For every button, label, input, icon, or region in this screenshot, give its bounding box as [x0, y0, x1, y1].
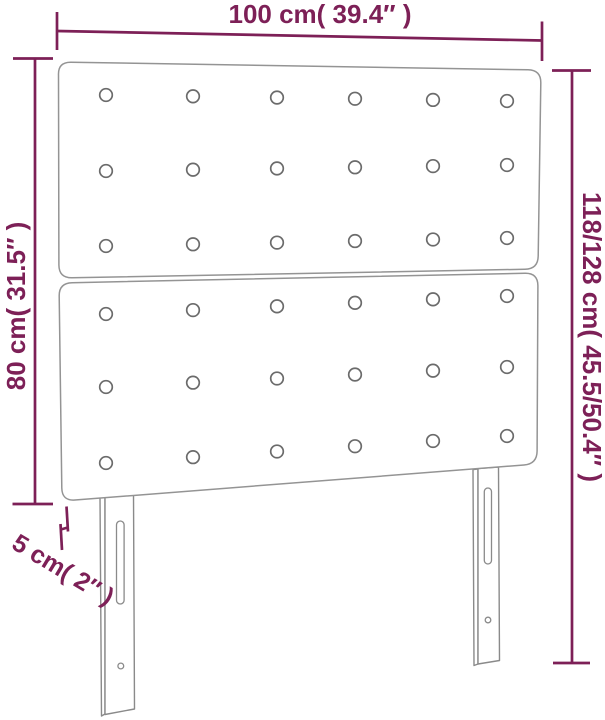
upholstery-button [100, 89, 113, 102]
upholstery-button [100, 165, 113, 178]
upholstery-button [501, 95, 514, 108]
upholstery-button [427, 364, 440, 377]
right-leg-slot [484, 488, 491, 564]
diagram-canvas: 100 cm( 39.4″ ) 80 cm( 31.5″ ) 118/128 c… [0, 0, 605, 720]
upholstery-button [271, 236, 284, 249]
upholstery-button [349, 92, 362, 105]
upholstery-button [187, 376, 200, 389]
upholstery-button [427, 94, 440, 107]
upholstery-button [100, 457, 113, 470]
thickness-dimension-connector [61, 528, 68, 530]
upholstery-button [427, 233, 440, 246]
upholstery-button [187, 163, 200, 176]
width-dimension-line [57, 31, 542, 41]
upholstery-button [427, 435, 440, 448]
upholstery-button [100, 308, 113, 321]
width-dimension: 100 cm( 39.4″ ) [57, 0, 542, 61]
right-leg-side-face [473, 469, 478, 666]
upholstery-button [501, 430, 514, 443]
upholstery-button [349, 235, 362, 248]
upholstery-button [271, 91, 284, 104]
upholstery-button [100, 240, 113, 253]
upholstery-button [501, 290, 514, 303]
right-height-dimension: 118/128 cm( 45.5/50.4″ ) [552, 71, 605, 664]
upholstery-button [271, 445, 284, 458]
upholstery-button [501, 361, 514, 374]
upholstery-button [187, 238, 200, 251]
width-dimension-label: 100 cm( 39.4″ ) [228, 0, 411, 29]
upholstery-button [427, 160, 440, 173]
upholstery-button [501, 159, 514, 172]
upholstery-button [271, 300, 284, 313]
upholstery-button [349, 297, 362, 310]
headboard-right-leg [473, 467, 500, 666]
upholstery-button [271, 372, 284, 385]
upholstery-button [271, 162, 284, 175]
upholstery-button [349, 161, 362, 174]
upholstery-button [100, 381, 113, 394]
right-height-dimension-label: 118/128 cm( 45.5/50.4″ ) [577, 192, 605, 482]
upholstery-button [187, 90, 200, 103]
left-height-dimension: 80 cm( 31.5″ ) [1, 59, 53, 505]
left-height-dimension-label: 80 cm( 31.5″ ) [1, 222, 31, 391]
upholstery-button [187, 304, 200, 317]
upholstery-button [349, 440, 362, 453]
upholstery-button [349, 368, 362, 381]
left-leg-screw-hole [118, 663, 124, 669]
right-leg-screw-hole [485, 617, 491, 623]
upholstery-button [501, 232, 514, 245]
headboard-upper-panel [58, 62, 540, 278]
headboard-lower-panel [59, 273, 538, 500]
upholstery-button [427, 293, 440, 306]
headboard-dimension-diagram: 100 cm( 39.4″ ) 80 cm( 31.5″ ) 118/128 c… [0, 0, 605, 720]
left-leg-slot [117, 521, 125, 604]
upholstery-button [187, 451, 200, 464]
